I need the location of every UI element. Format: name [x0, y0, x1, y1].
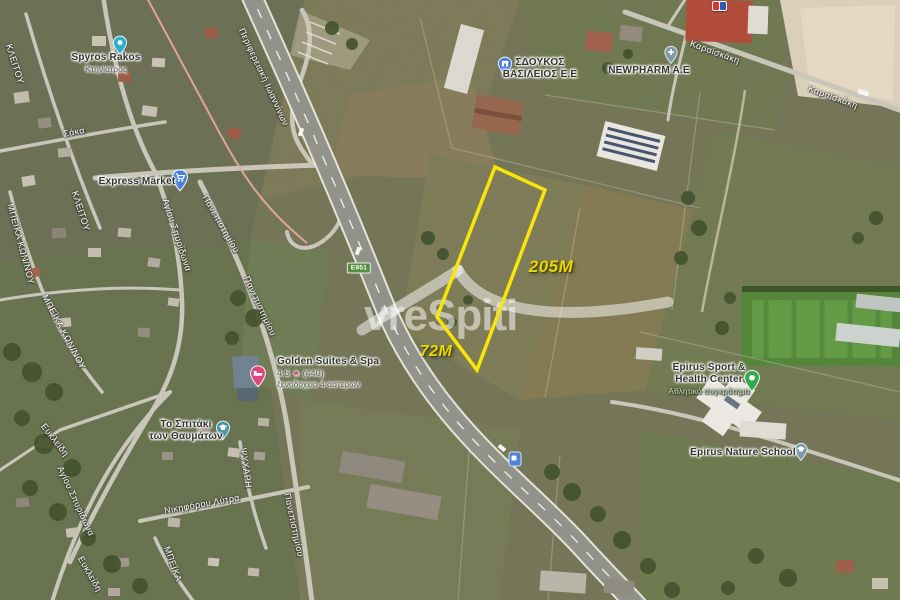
e951-road-shield: E951 — [347, 263, 371, 274]
pharmacy-pin-icon[interactable] — [664, 45, 678, 65]
place-hotel[interactable]: Golden Suites & Spa 4.6 ★ (440) ξενοδοχε… — [277, 356, 379, 389]
place-sdoukos[interactable]: ΣΔΟΥΚΟΣ ΒΑΣΙΛΕΙΟΣ Ε.Ε — [503, 57, 578, 81]
hotel-rating-row[interactable]: 4.6 ★ (440) — [277, 368, 379, 379]
hotel-pin-icon[interactable] — [250, 365, 267, 388]
plot-overlay — [0, 0, 900, 600]
place-hotel-name[interactable]: Golden Suites & Spa — [277, 356, 379, 368]
place-nature-school[interactable]: Epirus Nature School — [690, 447, 796, 459]
place-kindergarten[interactable]: Το Σπιτάκι των Θαυμάτων — [149, 419, 223, 443]
star-icon: ★ — [292, 368, 300, 378]
place-kindergarten-line2[interactable]: των Θαυμάτων — [149, 431, 223, 443]
place-sport-line2[interactable]: Health Center — [668, 374, 749, 386]
plot-width-label: 72M — [420, 343, 453, 361]
place-sdoukos-line1[interactable]: ΣΔΟΥΚΟΣ — [503, 57, 578, 69]
place-sport-line1[interactable]: Epirus Sport & — [668, 362, 749, 374]
road-shield-badge — [509, 452, 522, 467]
plot-length-label: 205M — [529, 257, 574, 277]
place-vet-category: Κτηνίατρος — [71, 64, 140, 74]
place-sport-category: Αθλητικό συγκρότημα — [668, 386, 749, 396]
place-express-market[interactable]: Express Market — [99, 176, 176, 188]
hotel-review-count: (440) — [303, 368, 324, 378]
hotel-rating-value: 4.6 — [277, 368, 290, 378]
place-kindergarten-line1[interactable]: Το Σπιτάκι — [149, 419, 223, 431]
road-shield-glyph — [512, 456, 517, 461]
place-hotel-category: ξενοδοχειο 4 αστερων — [277, 379, 379, 389]
place-vet[interactable]: Spyros Rakos Κτηνίατρος — [71, 52, 140, 74]
place-sdoukos-line2[interactable]: ΒΑΣΙΛΕΙΟΣ Ε.Ε — [503, 69, 578, 81]
place-sport-center[interactable]: Epirus Sport & Health Center Αθλητικό συ… — [668, 362, 749, 396]
satellite-map[interactable]: vreSpiti 205M 72M E951 Περιφερειακή Ιωαν… — [0, 0, 900, 600]
place-newpharm[interactable]: NEWPHARM A.E — [608, 65, 689, 77]
place-vet-name[interactable]: Spyros Rakos — [71, 52, 140, 64]
